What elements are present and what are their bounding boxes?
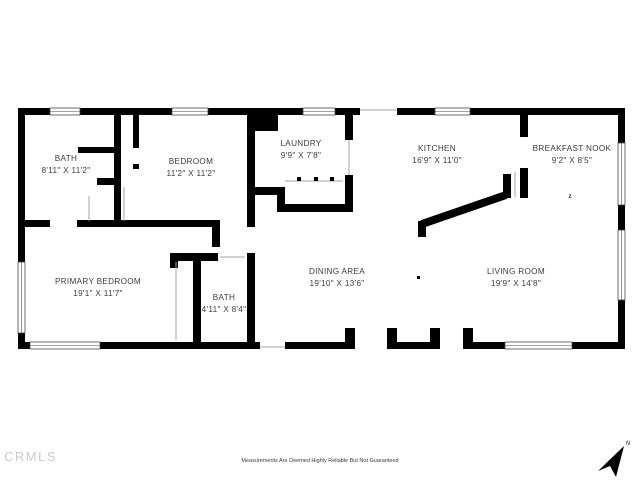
window bbox=[30, 342, 100, 349]
window bbox=[303, 108, 335, 115]
floorplan-canvas: BATH 8'11" X 11'2" BEDROOM 11'2" X 11'2"… bbox=[0, 0, 640, 480]
disclaimer-text: Measurements Are Deemed Highly Reliable … bbox=[0, 458, 640, 464]
room-label-bedroom: BEDROOM bbox=[169, 157, 213, 166]
room-label-dining: DINING AREA bbox=[309, 267, 365, 276]
room-dims-primary-bedroom: 19'1" X 11'7" bbox=[73, 289, 123, 298]
nook-marker: z bbox=[569, 194, 572, 200]
window bbox=[18, 262, 25, 333]
room-label-kitchen: KITCHEN bbox=[418, 144, 456, 153]
room-dims-kitchen: 16'9" X 11'0" bbox=[412, 156, 462, 165]
window bbox=[50, 108, 80, 115]
room-label-breakfast-nook: BREAKFAST NOOK bbox=[533, 144, 612, 153]
window bbox=[172, 108, 208, 115]
room-dims-bath2: 4'11" X 8'4" bbox=[202, 305, 247, 314]
room-dims-dining: 19'10" X 13'6" bbox=[309, 279, 364, 288]
compass-label: N bbox=[626, 441, 631, 447]
room-label-bath1: BATH bbox=[55, 154, 77, 163]
room-label-living: LIVING ROOM bbox=[487, 267, 545, 276]
window bbox=[505, 342, 572, 349]
room-dims-breakfast-nook: 9'2" X 8'5" bbox=[552, 156, 592, 165]
room-label-bath2: BATH bbox=[213, 293, 235, 302]
room-label-laundry: LAUNDRY bbox=[280, 139, 321, 148]
room-dims-living: 19'9" X 14'8" bbox=[491, 279, 541, 288]
room-label-primary-bedroom: PRIMARY BEDROOM bbox=[55, 277, 141, 286]
window bbox=[618, 230, 625, 300]
window bbox=[435, 108, 470, 115]
room-dims-bedroom: 11'2" X 11'2" bbox=[167, 169, 216, 178]
room-dims-laundry: 9'9" X 7'8" bbox=[281, 151, 321, 160]
window bbox=[618, 143, 625, 205]
room-dims-bath1: 8'11" X 11'2" bbox=[42, 166, 91, 175]
